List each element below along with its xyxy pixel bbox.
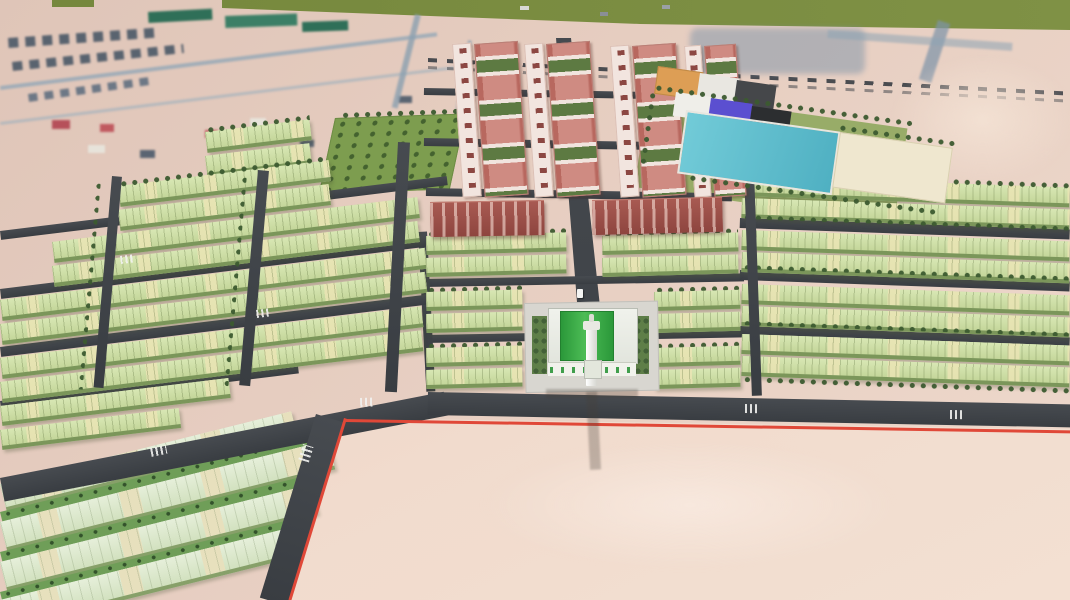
sat-town-red-roof-2 <box>100 124 114 132</box>
housing-row <box>654 346 740 367</box>
housing-row <box>426 254 566 277</box>
housing-row <box>426 345 522 367</box>
minaret-finial <box>589 314 594 322</box>
housing-row <box>426 367 522 389</box>
crosswalk <box>360 398 374 407</box>
housing-row <box>602 232 738 255</box>
sat-town-white-bldg-1 <box>88 145 105 153</box>
housing-row <box>654 312 740 333</box>
car-gray <box>662 5 670 9</box>
sat-town-roof-teal-3 <box>302 20 348 32</box>
sat-town-dark-bldg-1 <box>140 150 155 158</box>
sat-town-roof-teal-2 <box>225 13 297 28</box>
minaret-balcony <box>583 321 600 330</box>
housing-row <box>654 368 740 389</box>
apartment-slab-south <box>430 200 545 237</box>
housing-row <box>602 254 738 277</box>
crosswalk <box>120 254 135 264</box>
housing-row <box>426 311 522 333</box>
housing-row <box>654 290 740 311</box>
apartment-slab-south <box>592 197 723 235</box>
mosque-gate <box>584 360 602 379</box>
farmland-patch-left <box>52 0 94 7</box>
crosswalk <box>950 410 965 419</box>
car-dark <box>600 12 608 16</box>
sat-town-red-roof-1 <box>52 120 70 129</box>
car-light <box>520 6 529 10</box>
crosswalk <box>256 308 271 318</box>
housing-row <box>426 289 522 311</box>
car-white <box>577 289 583 298</box>
city-masterplan-3d-render <box>0 0 1070 600</box>
mosque-planter-west <box>532 316 547 374</box>
crosswalk <box>745 404 760 413</box>
vacant-plot-glow <box>480 440 900 570</box>
